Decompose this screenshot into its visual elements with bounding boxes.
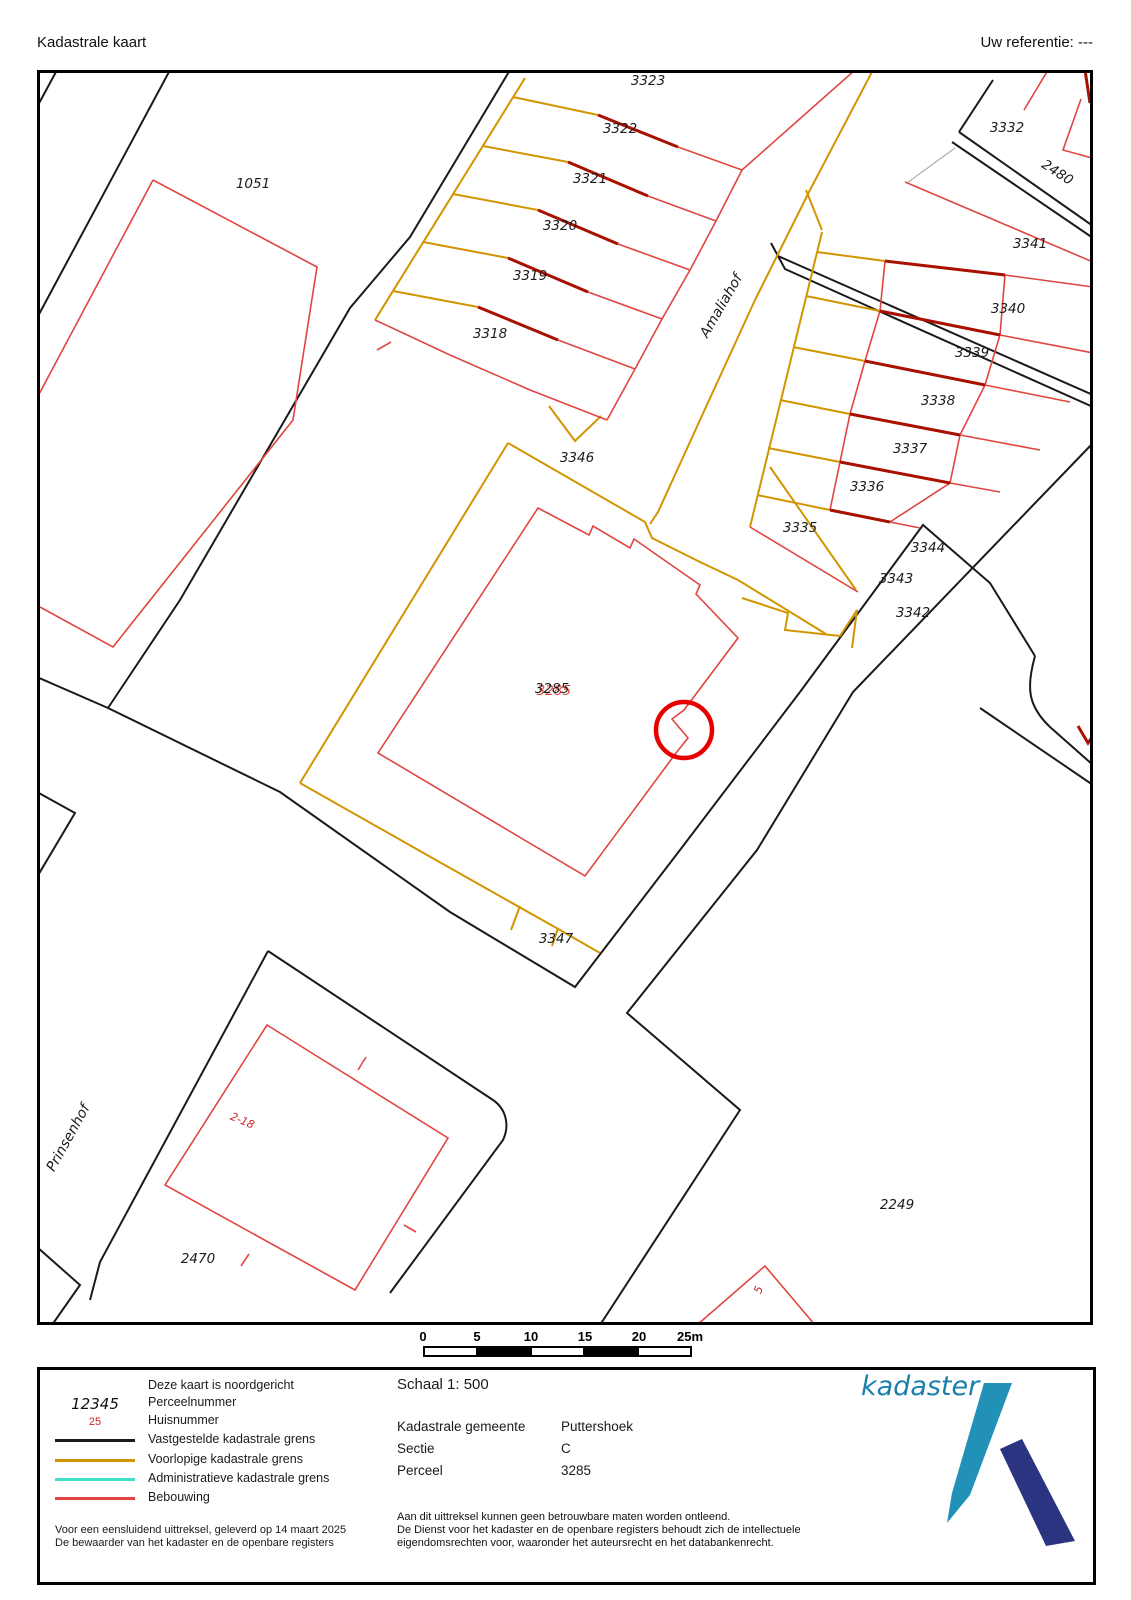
- parcel-3319: 3319: [513, 268, 547, 284]
- parcel-3323: 3323: [631, 73, 665, 89]
- detail-value-gemeente: Puttershoek: [561, 1419, 633, 1434]
- scale-segment: [477, 1347, 530, 1356]
- scale-segment: [531, 1347, 584, 1356]
- scale-segment: [584, 1347, 637, 1356]
- parcel-3340: 3340: [991, 301, 1025, 317]
- page-title: Kadastrale kaart: [37, 34, 146, 51]
- scale-tick-5: 5: [473, 1329, 480, 1344]
- parcel-3321: 3321: [573, 171, 607, 187]
- detail-label-perceel: Perceel: [397, 1463, 443, 1478]
- legend-footnote-2: De bewaarder van het kadaster en de open…: [55, 1537, 334, 1549]
- parcel-2470: 2470: [181, 1251, 215, 1267]
- legend-symbol-huis: 25: [55, 1416, 135, 1428]
- legend-label: Vastgestelde kadastrale grens: [148, 1432, 315, 1446]
- detail-label-sectie: Sectie: [397, 1441, 435, 1456]
- parcel-3346: 3346: [560, 450, 594, 466]
- disclaimer-line-2: De Dienst voor het kadaster en de openba…: [397, 1524, 801, 1536]
- legend-line-sample: [55, 1478, 135, 1481]
- north-note: Deze kaart is noordgericht: [148, 1378, 294, 1392]
- parcel-2480: 2480: [1038, 157, 1076, 189]
- street-prinsenhof: Prinsenhof: [44, 1100, 95, 1174]
- parcel-2249: 2249: [880, 1197, 914, 1213]
- legend-line-sample: [55, 1497, 135, 1500]
- kadaster-logo-icon: [938, 1377, 1078, 1549]
- legend-label: Bebouwing: [148, 1490, 210, 1504]
- street-amaliahof: Amaliahof: [696, 270, 747, 342]
- legend-line-sample: [55, 1459, 135, 1462]
- detail-value-perceel: 3285: [561, 1463, 591, 1478]
- provisional-boundaries: [300, 70, 885, 953]
- legend-symbol-perceel: 12345: [55, 1395, 135, 1413]
- detail-label-gemeente: Kadastrale gemeente: [397, 1419, 525, 1434]
- parcel-3339: 3339: [955, 345, 989, 361]
- legend-label: Voorlopige kadastrale grens: [148, 1452, 303, 1466]
- parcel-3332: 3332: [990, 120, 1024, 136]
- parcel-3344: 3344: [911, 540, 945, 556]
- legend-label: Administratieve kadastrale grens: [148, 1471, 329, 1485]
- parcel-3335: 3335: [783, 520, 817, 536]
- parcel-3343: 3343: [879, 571, 913, 587]
- house-5: 5: [751, 1284, 766, 1295]
- parcel-3337: 3337: [893, 441, 928, 457]
- disclaimer-line-3: eigendomsrechten voor, waaronder het aut…: [397, 1537, 774, 1549]
- logo-blade-dark: [1000, 1439, 1075, 1546]
- scale-tick-25m: 25m: [677, 1329, 703, 1344]
- parcel-3338: 3338: [921, 393, 955, 409]
- scale-bar-segments: [423, 1346, 692, 1357]
- map-canvas: 1051332333223321332033193318333224803341…: [37, 70, 1093, 1325]
- parcel-3322: 3322: [603, 121, 637, 137]
- reference-label: Uw referentie: ---: [980, 34, 1093, 51]
- house-2-18: 2-18: [228, 1110, 256, 1132]
- parcel-3342: 3342: [896, 605, 930, 621]
- parcel-3318: 3318: [473, 326, 507, 342]
- scale-label: Schaal 1: 500: [397, 1376, 489, 1393]
- map-labels: 1051332333223321332033193318333224803341…: [44, 73, 1076, 1295]
- scale-tick-10: 10: [524, 1329, 538, 1344]
- scale-tick-20: 20: [632, 1329, 646, 1344]
- parcel-3320: 3320: [543, 218, 577, 234]
- disclaimer-line-1: Aan dit uittreksel kunnen geen betrouwba…: [397, 1511, 730, 1523]
- cadastral-map: 1051332333223321332033193318333224803341…: [37, 70, 1093, 1325]
- legend-label: Perceelnummer: [148, 1395, 236, 1409]
- parcel-1051: 1051: [236, 176, 270, 192]
- label-leader-line: [907, 148, 955, 183]
- legend-footnote-1: Voor een eensluidend uittreksel, gelever…: [55, 1524, 346, 1536]
- legend-label: Huisnummer: [148, 1413, 219, 1427]
- parcel-3285: 3285: [535, 681, 569, 697]
- cadastral-extract-page: Kadastrale kaart Uw referentie: ---: [0, 0, 1131, 1600]
- scale-tick-15: 15: [578, 1329, 592, 1344]
- parcel-3341: 3341: [1013, 236, 1047, 252]
- legend-line-sample: [55, 1439, 135, 1442]
- scale-tick-0: 0: [419, 1329, 426, 1344]
- scale-segment: [424, 1347, 477, 1356]
- scale-segment: [638, 1347, 691, 1356]
- parcel-3347: 3347: [539, 931, 574, 947]
- detail-value-sectie: C: [561, 1441, 571, 1456]
- parcel-3336: 3336: [850, 479, 884, 495]
